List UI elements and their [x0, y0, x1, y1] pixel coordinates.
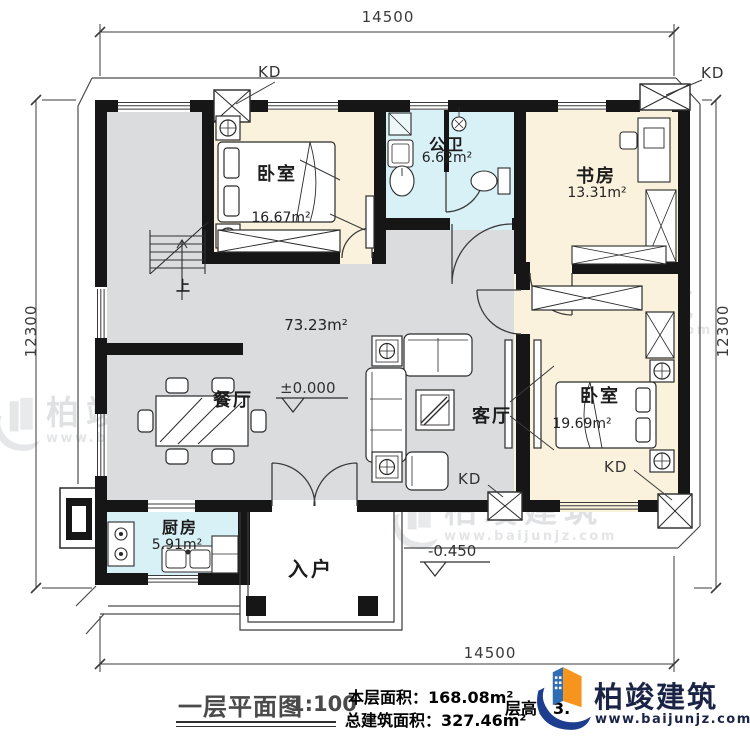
- drawing-title: 一层平面图: [178, 687, 303, 722]
- room-label-living: 客厅: [447, 402, 537, 428]
- room-area-open: 73.23m²: [271, 316, 361, 334]
- brand-site: www.baijunjz.com: [595, 712, 750, 727]
- room-area-bedroom1: 16.67m²: [236, 210, 326, 226]
- floor-area-note: 本层面积：168.08m²: [348, 684, 513, 708]
- title-underline: [176, 721, 336, 723]
- room-area-kitchen: 5.91m²: [132, 537, 222, 553]
- room-label-dining: 餐厅: [188, 386, 278, 412]
- chimney: [60, 488, 98, 548]
- stairs-up-label: 上: [176, 276, 190, 296]
- room-area-bedroom2: 19.69m²: [537, 416, 627, 432]
- room-area-study: 13.31m²: [552, 185, 642, 201]
- kd-tag-top-left: KD: [258, 63, 281, 81]
- dimension-bottom: 14500: [455, 644, 525, 662]
- dimension-left: 12300: [22, 296, 40, 366]
- room-area-bathroom: 6.62m²: [402, 150, 492, 166]
- title-underline: [176, 726, 336, 727]
- floor-plan-drawing: [0, 0, 750, 741]
- room-label-entry: 入户: [288, 553, 334, 582]
- dimension-top: 14500: [353, 8, 423, 26]
- floor-plan-sheet: 柏竣建筑 www.baijunjz.com 柏竣建筑 www.baijunjz.…: [0, 0, 750, 741]
- dimension-right: 12300: [714, 296, 732, 366]
- level-marker-main: ±0.000: [280, 379, 336, 397]
- kd-box-living-south: [488, 492, 522, 520]
- kd-tag-living: KD: [458, 470, 481, 488]
- room-label-bedroom2: 卧室: [555, 382, 645, 408]
- room-label-kitchen: 厨房: [135, 514, 225, 538]
- brand-logo-icon: [530, 664, 592, 740]
- total-area-note: 总建筑面积：327.46m²: [345, 707, 526, 731]
- room-label-bedroom1: 卧室: [232, 160, 322, 186]
- kd-box-bedroom2-south: [658, 494, 692, 528]
- brand-name: 柏竣建筑: [594, 674, 718, 716]
- kd-tag-top-right: KD: [701, 64, 724, 82]
- level-marker-entry: -0.450: [428, 542, 476, 560]
- kd-tag-bedroom2: KD: [604, 458, 627, 476]
